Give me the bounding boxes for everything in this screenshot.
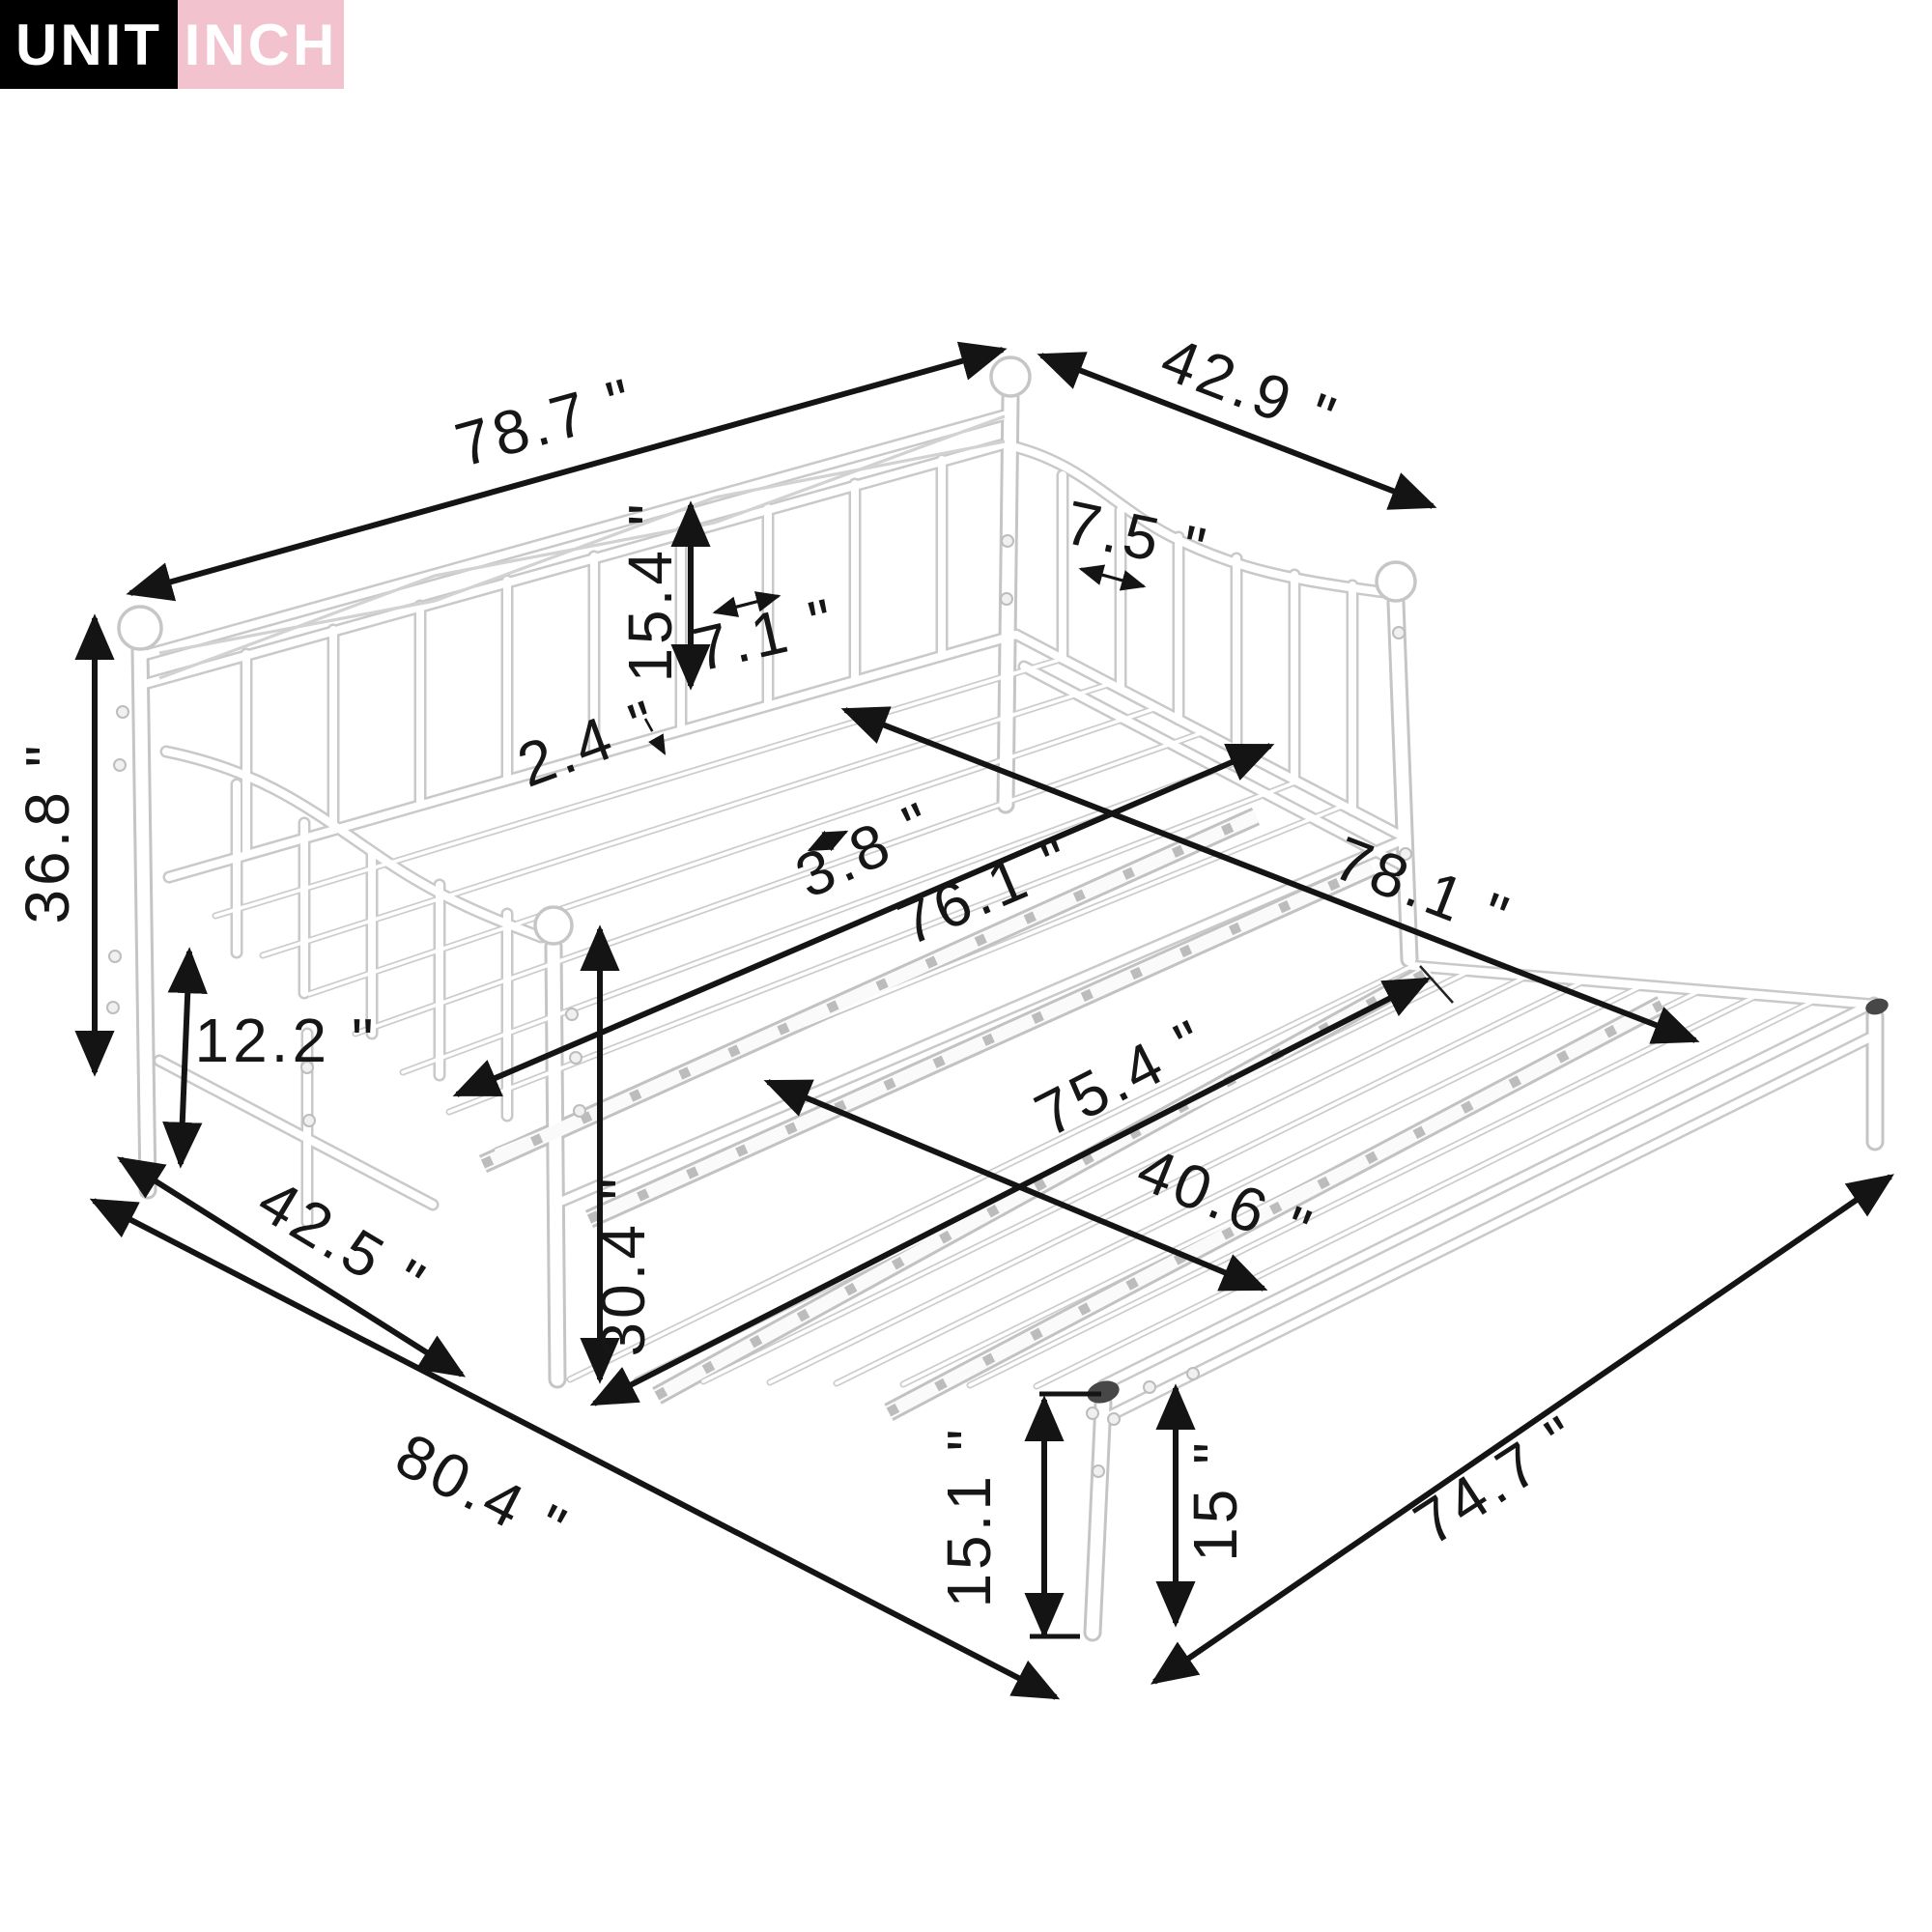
left-arm-curve — [166, 752, 541, 937]
back-left-post — [140, 649, 148, 1190]
back-second-rail — [145, 442, 1010, 684]
dim-label-74-7: 74.7 " — [1402, 1401, 1593, 1558]
finial-front-middle — [535, 907, 572, 944]
dim-label-80-4: 80.4 " — [385, 1419, 580, 1564]
unit-badge-value: INCH — [178, 0, 344, 89]
bed-dimension-drawing: 78.7 " 42.9 " 7.5 " 15.4 " 7.1 " 2.4 " — [0, 0, 1932, 1932]
back-top-rail — [145, 413, 1010, 655]
dim-label-36-8: 36.8 " — [13, 741, 82, 923]
dimension-annotations: 78.7 " 42.9 " 7.5 " 15.4 " 7.1 " 2.4 " — [13, 324, 1890, 1697]
dim-label-75-4: 75.4 " — [1024, 1005, 1218, 1150]
dim-label-15-4: 15.4 " — [615, 499, 685, 682]
finial-right — [1377, 562, 1415, 601]
dim-front-post-height: 30.4 " — [588, 929, 658, 1379]
dim-label-78-7: 78.7 " — [448, 364, 642, 480]
diagram-canvas: UNIT INCH — [0, 0, 1932, 1932]
dim-trundle-leg-height-a: 15.1 " — [934, 1394, 1101, 1636]
dim-back-bar-spacing: 7.5 " — [1059, 487, 1214, 586]
dim-label-15-1: 15.1 " — [934, 1425, 1004, 1607]
unit-badge-label: UNIT — [0, 0, 178, 89]
dim-daybed-top-length: 78.7 " — [130, 350, 1003, 593]
dim-daybed-top-width: 42.9 " — [1041, 324, 1433, 506]
dim-trundle-leg-height-b: 15 " — [1176, 1388, 1250, 1623]
dim-label-15: 15 " — [1180, 1438, 1250, 1562]
dim-label-7-1: 7.1 " — [687, 584, 843, 685]
front-middle-post — [554, 947, 557, 1379]
dim-back-post-height: 36.8 " — [13, 618, 95, 1072]
dim-back-panel-height: 15.4 " — [615, 499, 691, 686]
finial-back-corner — [991, 357, 1030, 396]
unit-badge: UNIT INCH — [0, 0, 344, 89]
dim-mid-bar-spacing: 7.1 " — [687, 584, 843, 685]
dim-label-12-2: 12.2 " — [194, 1006, 377, 1075]
dim-label-30-4: 30.4 " — [588, 1174, 658, 1356]
finial-back-left — [119, 607, 161, 649]
